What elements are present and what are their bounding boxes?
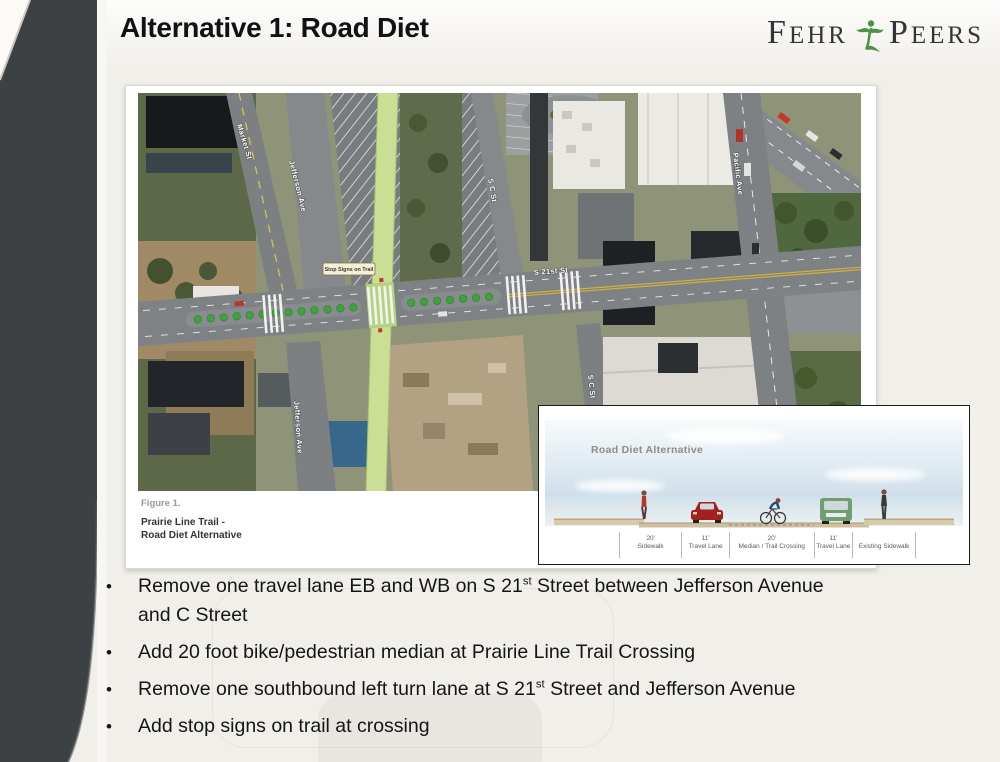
map-trail-stop-marker-north (379, 278, 383, 282)
bullet-item: •Add stop signs on trail at crossing (100, 712, 960, 741)
bullet-list: •Remove one travel lane EB and WB on S 2… (100, 572, 960, 749)
fehr-peers-logo: FEHR PEERS (767, 16, 984, 56)
dim-cell-median-trail-crossing: 20' Median / Trail Crossing (729, 532, 814, 558)
stop-signs-callout-label: Stop Signs on Trail (325, 267, 374, 273)
cross-section-ground (554, 519, 954, 528)
caption-line-1: Prairie Line Trail - (141, 516, 242, 529)
caption-line-2: Road Diet Alternative (141, 529, 242, 542)
bullet-marker: • (100, 712, 138, 741)
bullet-marker: • (100, 638, 138, 667)
map-construction-area (383, 335, 533, 491)
dimension-labels: 20' Sidewalk 11' Travel Lane 20' Median … (619, 532, 916, 558)
green-suv (820, 498, 852, 524)
page-title: Alternative 1: Road Diet (120, 12, 429, 44)
bullet-marker: • (100, 675, 138, 704)
dim-cell-existing-sidewalk: Existing Sidewalk (852, 532, 916, 558)
dim-cell-travel-lane-east: 11' Travel Lane (814, 532, 853, 558)
pedestrian-left (641, 490, 646, 519)
bullet-text: Remove one travel lane EB and WB on S 21… (138, 572, 960, 630)
bullet-item: •Remove one southbound left turn lane at… (100, 675, 960, 704)
map-car-on-road-2 (438, 311, 447, 317)
bullet-text: Add stop signs on trail at crossing (138, 712, 960, 741)
bullet-text: Add 20 foot bike/pedestrian median at Pr… (138, 638, 960, 667)
pedestrian-right (881, 489, 887, 519)
map-caption: Figure 1. Prairie Line Trail - Road Diet… (141, 498, 242, 542)
bullet-item: •Remove one travel lane EB and WB on S 2… (100, 572, 960, 630)
cyclist (761, 498, 786, 523)
road-diet-cross-section-inset: Road Diet Alternative (538, 405, 970, 565)
bullet-marker: • (100, 572, 138, 630)
logo-word-peers: PEERS (889, 16, 984, 51)
red-car (691, 502, 723, 523)
dim-cell-travel-lane-west: 11' Travel Lane (681, 532, 729, 558)
logo-word-fehr: FEHR (767, 16, 848, 51)
map-trail-stop-marker-south (378, 328, 382, 332)
bullet-item: •Add 20 foot bike/pedestrian median at P… (100, 638, 960, 667)
fehr-peers-figure-icon (853, 18, 887, 58)
figure-number: Figure 1. (141, 498, 242, 509)
dim-cell-sidewalk: 20' Sidewalk (619, 532, 681, 558)
bullet-text: Remove one southbound left turn lane at … (138, 675, 960, 704)
map-stop-signs-callout: Stop Signs on Trail (323, 263, 375, 275)
map-car-on-road (235, 301, 244, 307)
presentation-slide: Alternative 1: Road Diet FEHR PEERS (0, 0, 1000, 762)
